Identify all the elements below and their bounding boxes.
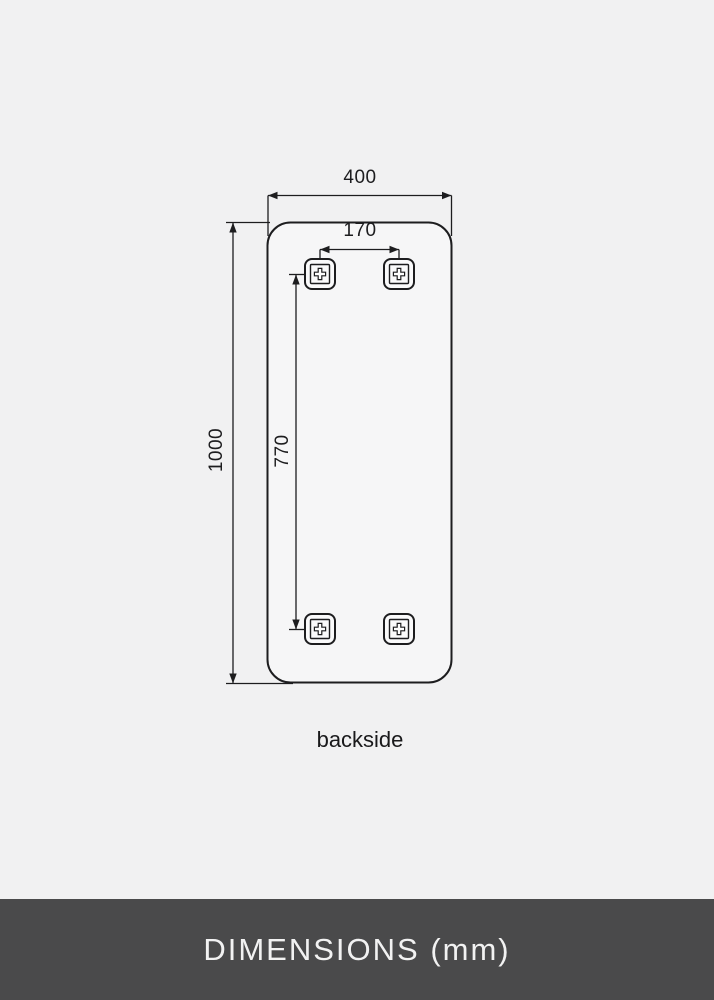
arrow-left-icon bbox=[268, 192, 278, 199]
mounting-bracket-icon bbox=[384, 259, 414, 289]
arrow-right-icon bbox=[442, 192, 452, 199]
mounting-bracket-icon bbox=[384, 614, 414, 644]
bracket-horizontal-dimension-label: 170 bbox=[310, 220, 410, 242]
bracket-vertical-dimension-label: 770 bbox=[272, 401, 294, 501]
arrow-down-icon bbox=[229, 674, 236, 684]
mirror-outline bbox=[268, 223, 452, 683]
mounting-bracket-icon bbox=[305, 614, 335, 644]
footer-title: DIMENSIONS (mm) bbox=[203, 932, 510, 968]
height-dimension-label: 1000 bbox=[206, 400, 228, 500]
dimension-drawing: 400 170 1000 770 backside bbox=[0, 0, 714, 1000]
footer-bar: DIMENSIONS (mm) bbox=[0, 899, 714, 1000]
width-dimension-label: 400 bbox=[310, 167, 410, 189]
backside-caption: backside bbox=[280, 728, 440, 752]
mounting-bracket-icon bbox=[305, 259, 335, 289]
arrow-up-icon bbox=[229, 223, 236, 233]
mirror-technical-diagram bbox=[0, 0, 714, 1000]
product-dimension-page: { "drawing": { "dimensions": { "overall_… bbox=[0, 0, 714, 1000]
